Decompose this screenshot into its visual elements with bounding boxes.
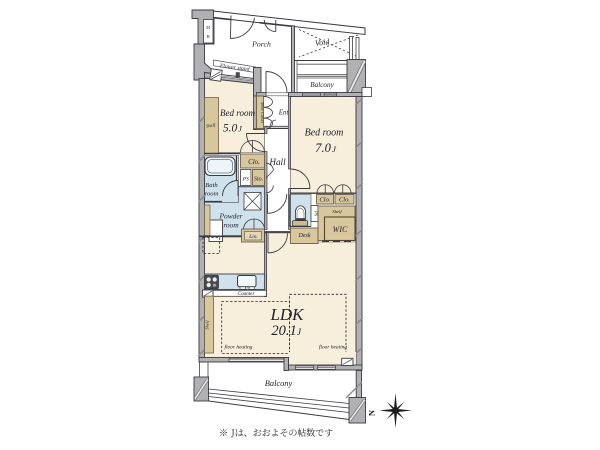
svg-text:Bath: Bath	[205, 182, 218, 189]
svg-text:LDK: LDK	[269, 305, 305, 324]
svg-text:Balcony: Balcony	[265, 379, 293, 388]
svg-text:5.0: 5.0	[223, 123, 238, 135]
svg-text:Void: Void	[315, 37, 331, 48]
svg-text:Desk: Desk	[298, 233, 311, 239]
svg-text:room: room	[223, 221, 239, 230]
svg-text:Clo.: Clo.	[339, 197, 351, 204]
svg-text:Shelf: Shelf	[205, 320, 210, 330]
svg-text:Lin.: Lin.	[248, 234, 258, 240]
svg-text:Counter: Counter	[237, 291, 255, 297]
svg-text:Clo.: Clo.	[248, 158, 260, 166]
svg-text:B: B	[207, 34, 210, 39]
svg-text:20.1: 20.1	[271, 323, 296, 339]
svg-text:room: room	[205, 191, 219, 198]
svg-text:7.0: 7.0	[315, 141, 331, 155]
svg-text:Porch: Porch	[251, 40, 271, 49]
svg-text:Shelf: Shelf	[332, 209, 342, 214]
svg-text:Powder: Powder	[219, 212, 243, 221]
svg-text:Balcony: Balcony	[310, 81, 334, 89]
svg-text:Bed room: Bed room	[305, 128, 344, 139]
svg-text:Clo.: Clo.	[319, 197, 331, 204]
svg-text:floor heating: floor heating	[224, 344, 252, 351]
svg-text:N: N	[367, 409, 377, 416]
svg-text:PS: PS	[242, 177, 249, 183]
svg-text:WIC: WIC	[333, 225, 348, 234]
svg-text:Shoe Closet: Shoe Closet	[260, 102, 265, 124]
svg-text:Bed room: Bed room	[220, 108, 255, 118]
svg-text:J: J	[238, 125, 242, 134]
svg-text:Sto.: Sto.	[254, 177, 263, 183]
svg-text:Hall: Hall	[268, 157, 286, 167]
svg-text:floor heating: floor heating	[319, 344, 347, 351]
